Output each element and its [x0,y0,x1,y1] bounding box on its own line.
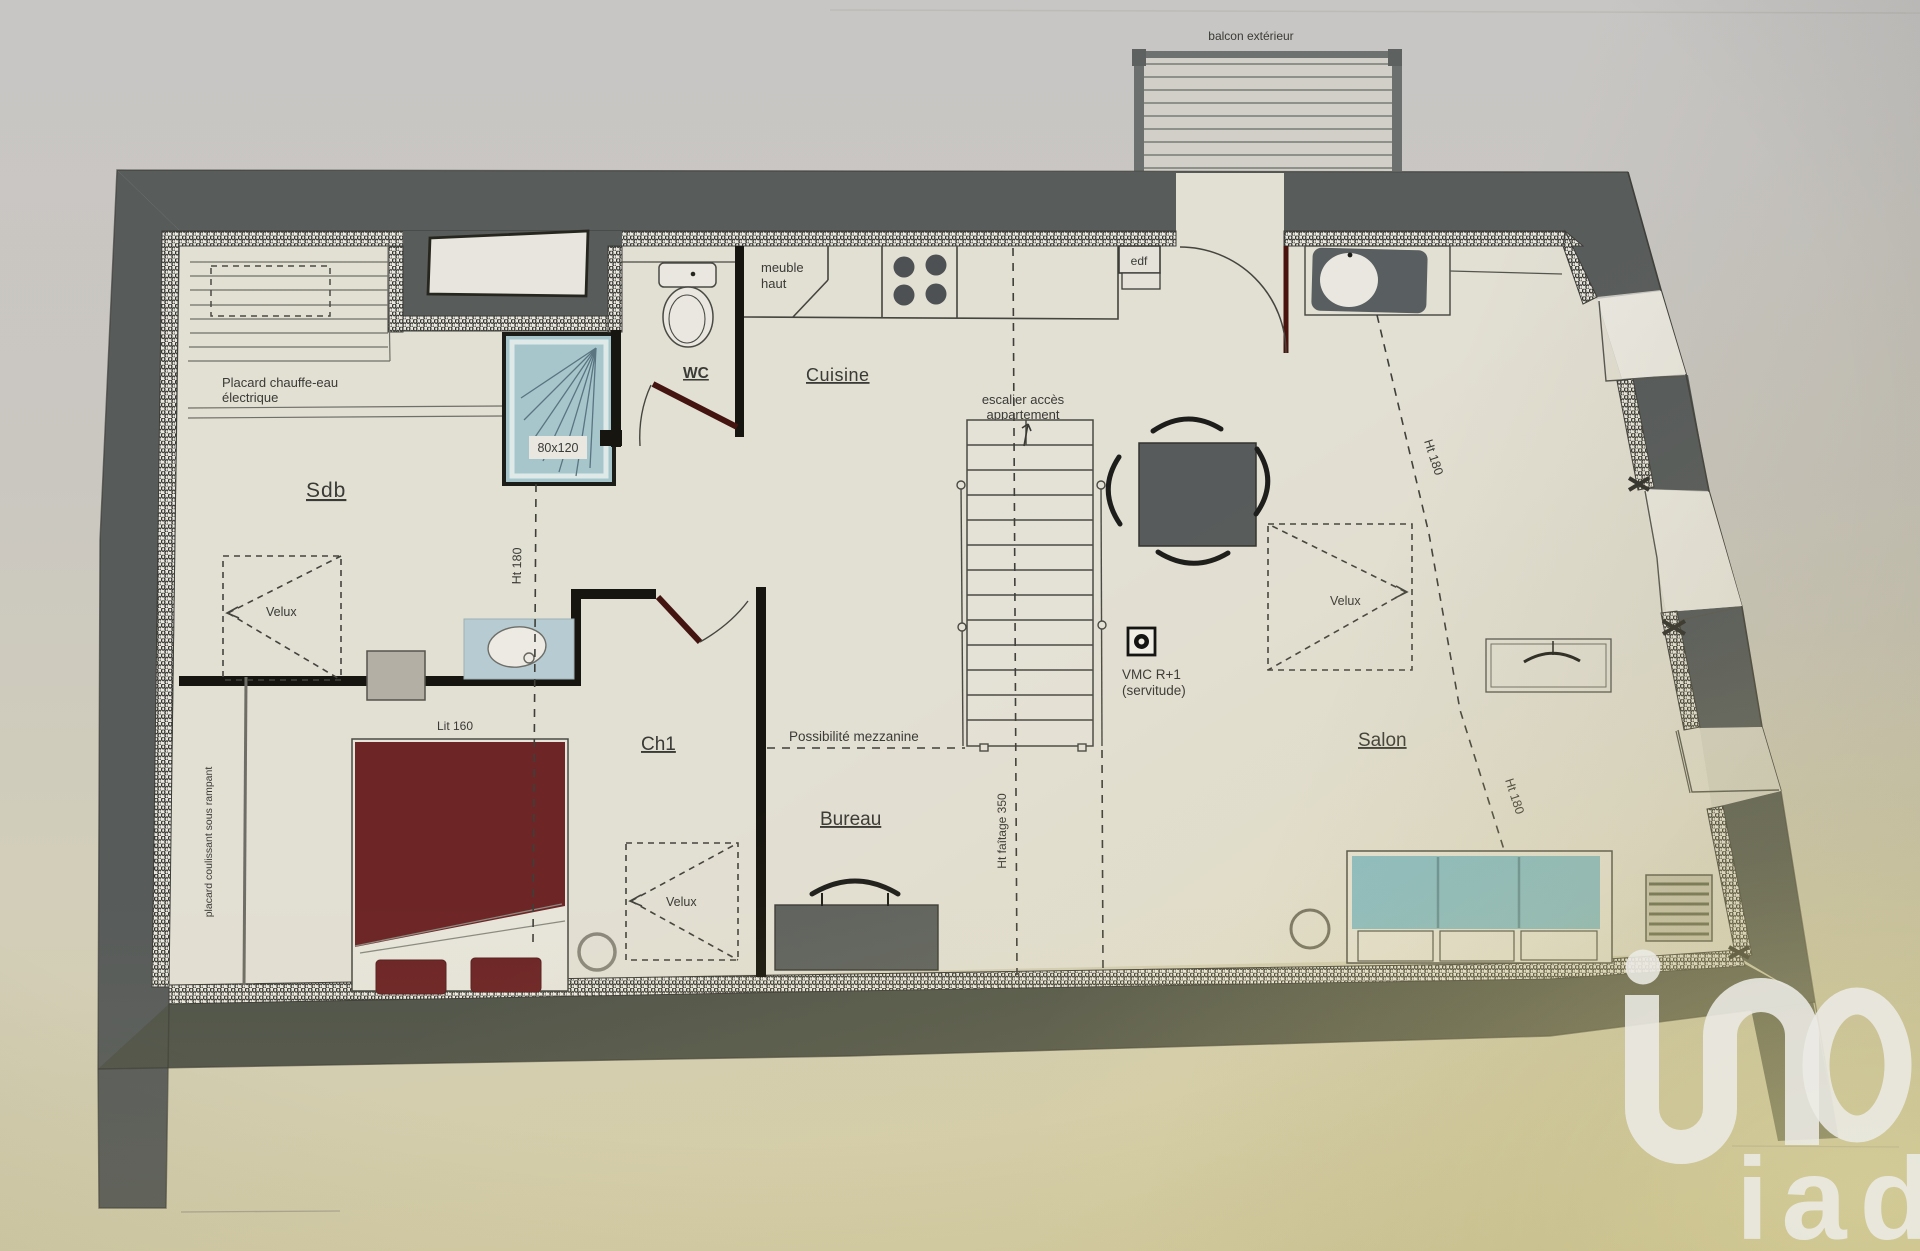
svg-text:iad: iad [1736,1133,1920,1251]
